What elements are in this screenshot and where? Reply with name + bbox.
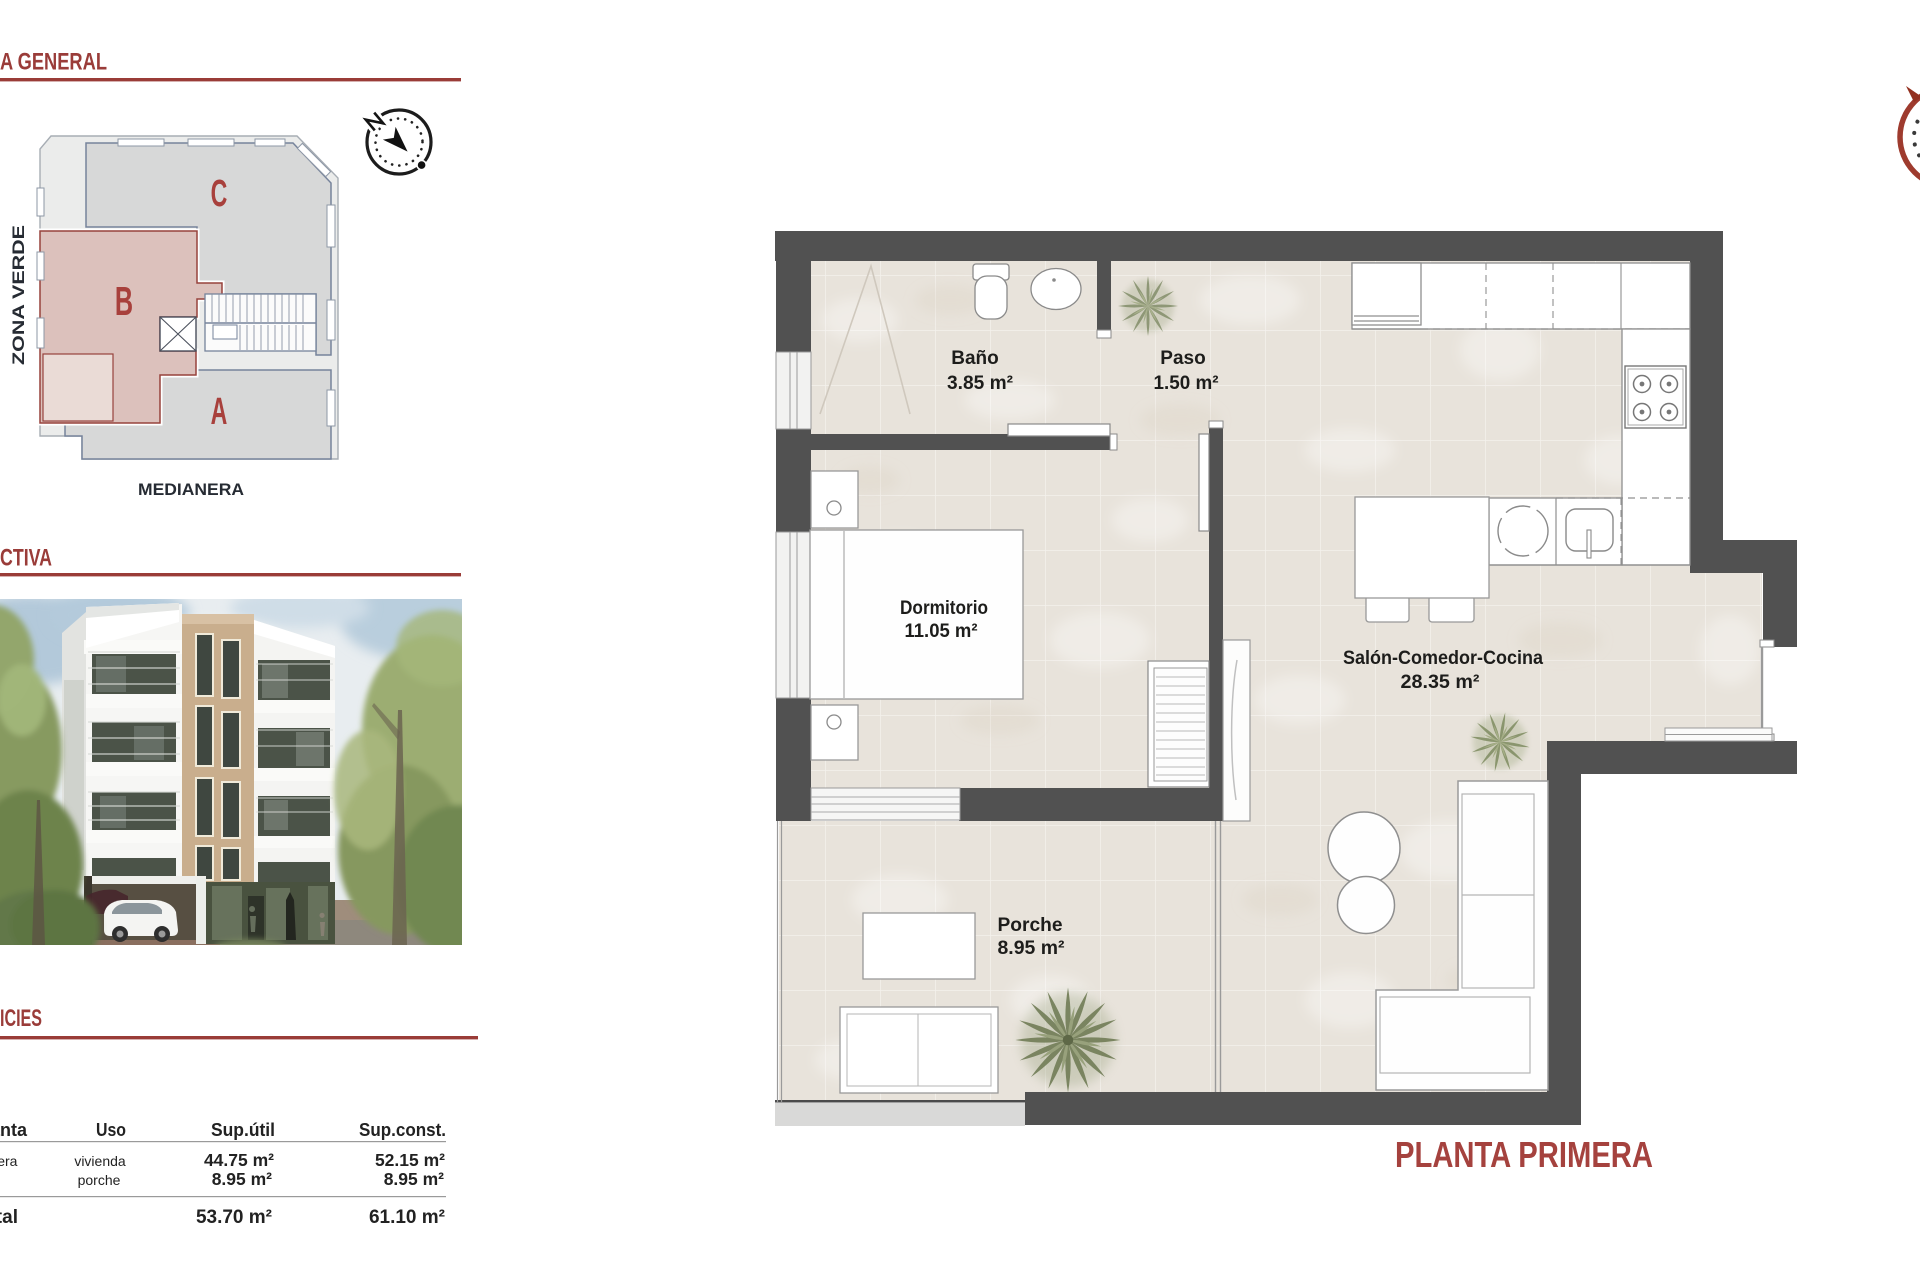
svg-text:Sup.útil: Sup.útil	[211, 1120, 275, 1140]
svg-text:28.35 m²: 28.35 m²	[1401, 672, 1480, 693]
svg-text:3.85 m²: 3.85 m²	[947, 373, 1013, 394]
svg-text:Planta: Planta	[0, 1120, 28, 1140]
svg-text:ZONA VERDE: ZONA VERDE	[10, 225, 28, 365]
svg-text:PLANTA PRIMERA: PLANTA PRIMERA	[1395, 1134, 1653, 1175]
svg-text:11.05 m²: 11.05 m²	[905, 621, 978, 642]
svg-text:Uso: Uso	[96, 1120, 126, 1140]
svg-text:Porche: Porche	[998, 915, 1063, 936]
svg-text:8.95 m²: 8.95 m²	[384, 1169, 444, 1189]
svg-text:Dormitorio: Dormitorio	[900, 598, 988, 619]
svg-text:Salón-Comedor-Cocina: Salón-Comedor-Cocina	[1343, 648, 1543, 669]
svg-text:53.70 m²: 53.70 m²	[196, 1207, 272, 1228]
svg-text:Baño: Baño	[951, 348, 999, 369]
svg-text:8.95 m²: 8.95 m²	[212, 1169, 272, 1189]
svg-text:Total: Total	[0, 1207, 18, 1228]
svg-text:1.50 m²: 1.50 m²	[1154, 373, 1219, 394]
svg-text:A: A	[211, 389, 228, 433]
svg-text:ICIES: ICIES	[0, 1005, 42, 1032]
svg-text:primera: primera	[0, 1153, 18, 1169]
svg-text:52.15 m²: 52.15 m²	[375, 1150, 445, 1170]
svg-text:C: C	[211, 171, 228, 215]
svg-text:B: B	[115, 280, 133, 324]
svg-text:porche: porche	[78, 1172, 121, 1188]
svg-text:8.95 m²: 8.95 m²	[998, 938, 1065, 959]
svg-text:CTIVA: CTIVA	[0, 545, 52, 572]
svg-text:vivienda: vivienda	[74, 1153, 126, 1169]
svg-text:A GENERAL: A GENERAL	[0, 49, 107, 76]
svg-text:Sup.const.: Sup.const.	[359, 1120, 446, 1140]
svg-text:61.10 m²: 61.10 m²	[369, 1207, 445, 1228]
svg-text:44.75 m²: 44.75 m²	[204, 1150, 274, 1170]
svg-text:MEDIANERA: MEDIANERA	[138, 480, 244, 499]
svg-text:Paso: Paso	[1160, 348, 1205, 369]
